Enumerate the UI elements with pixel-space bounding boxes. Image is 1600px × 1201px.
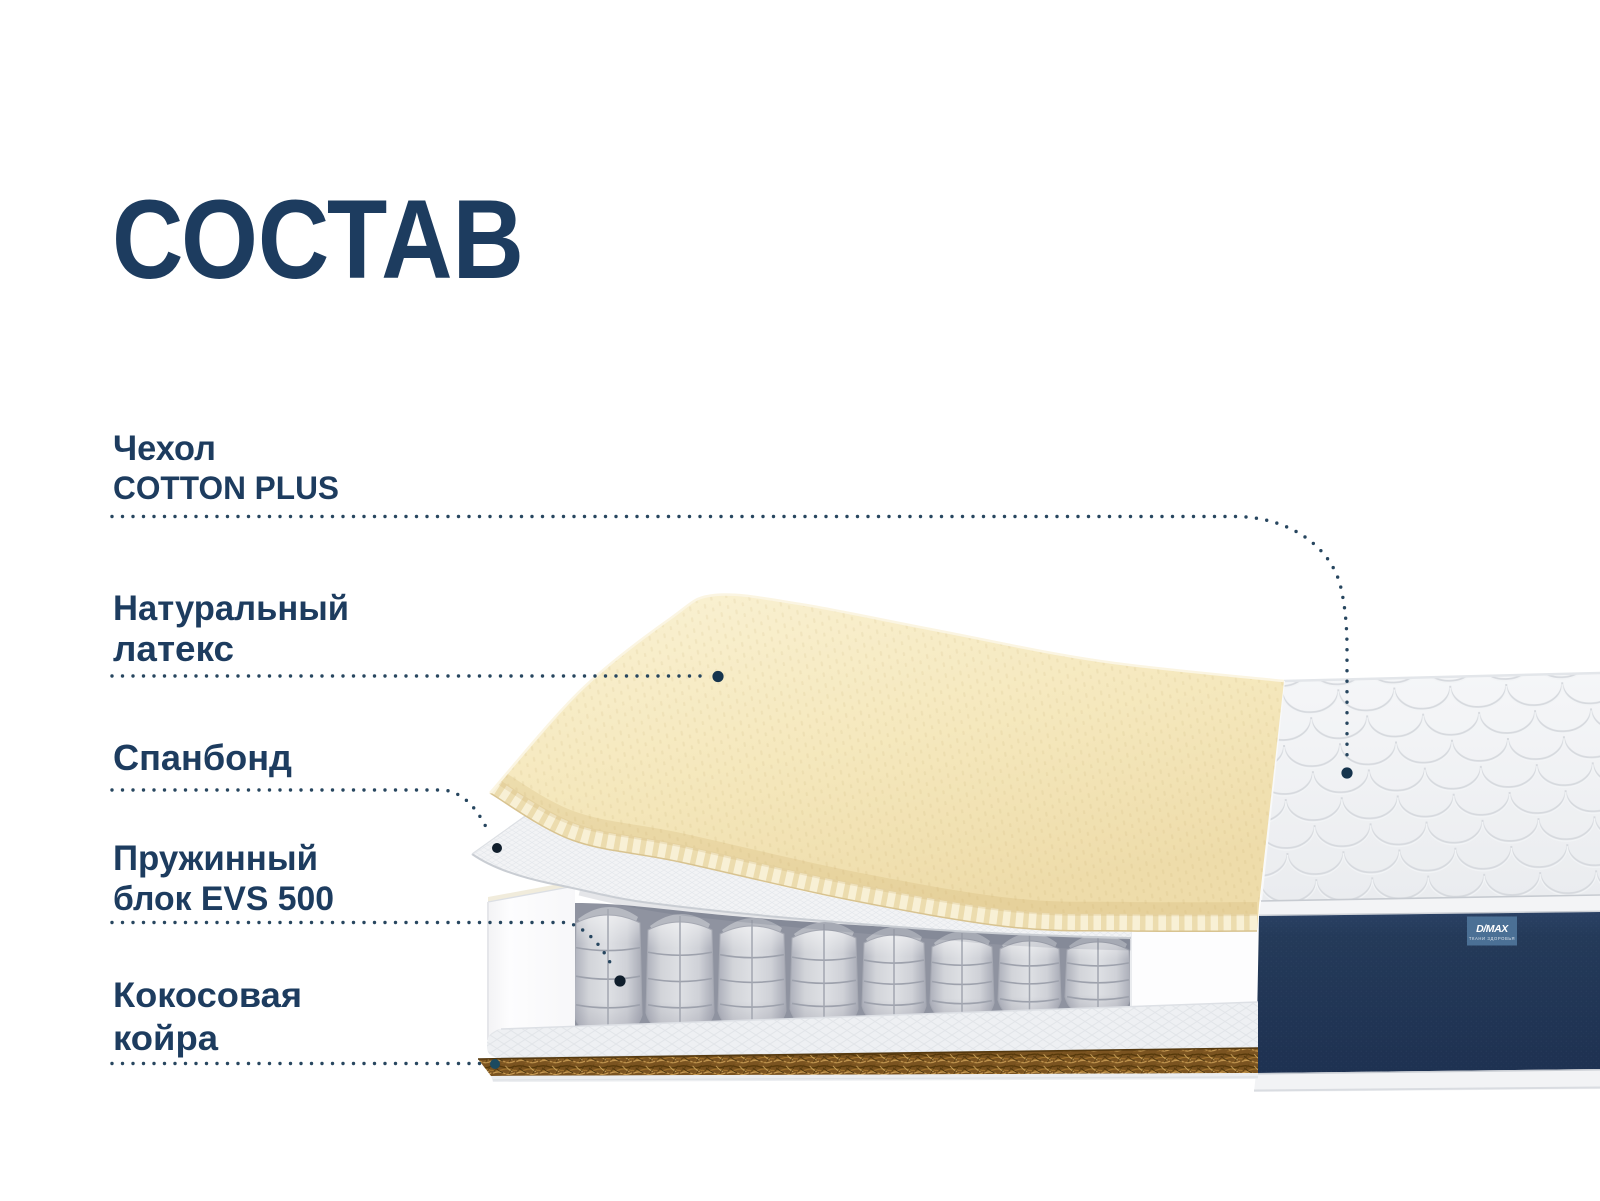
svg-text:Чехол: Чехол: [113, 429, 216, 468]
svg-text:блок EVS 500: блок EVS 500: [113, 880, 334, 918]
svg-text:D/MAX: D/MAX: [1476, 923, 1509, 935]
svg-text:ТКАНИ ЗДОРОВЬЯ: ТКАНИ ЗДОРОВЬЯ: [1469, 936, 1515, 941]
svg-text:Спанбонд: Спанбонд: [113, 737, 292, 778]
svg-text:Пружинный: Пружинный: [113, 839, 318, 878]
svg-text:латекс: латекс: [113, 628, 234, 669]
svg-text:СОСТАВ: СОСТАВ: [112, 177, 524, 302]
svg-text:Кокосовая: Кокосовая: [113, 976, 302, 1015]
svg-text:Натуральный: Натуральный: [113, 589, 349, 628]
svg-text:койра: койра: [113, 1019, 219, 1058]
svg-text:COTTON PLUS: COTTON PLUS: [113, 470, 339, 506]
